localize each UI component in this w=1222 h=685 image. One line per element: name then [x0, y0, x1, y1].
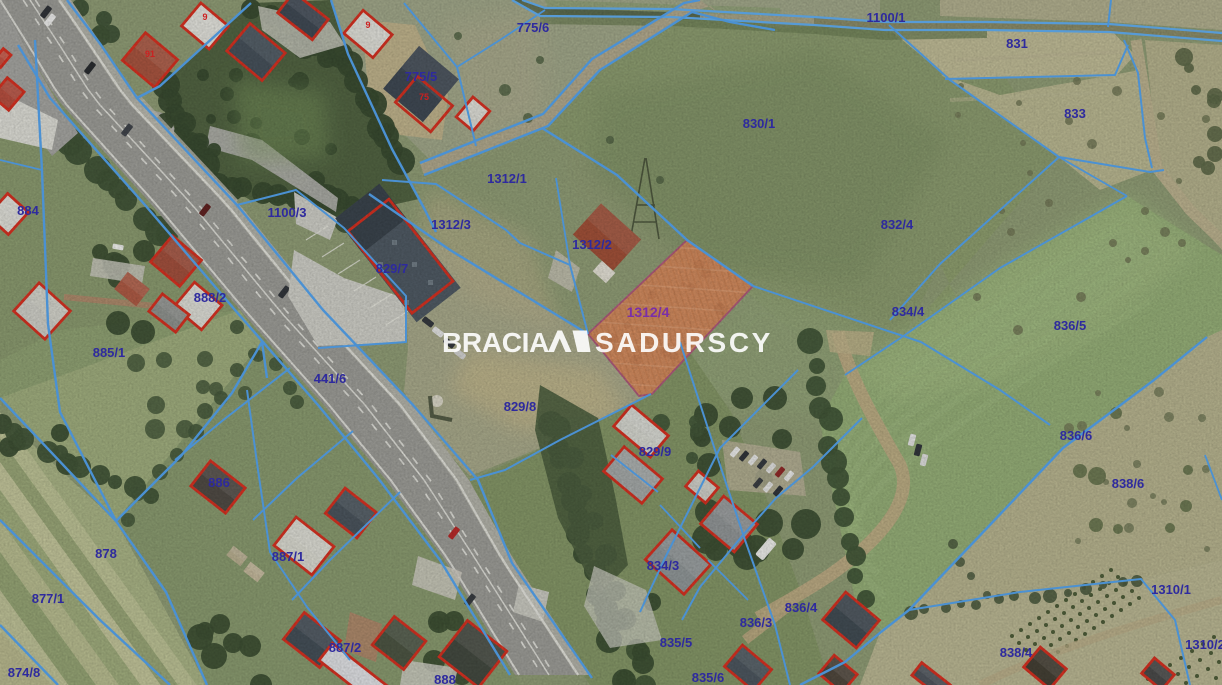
svg-text:834/3: 834/3	[647, 558, 680, 573]
svg-text:886: 886	[208, 475, 230, 490]
svg-text:75: 75	[419, 92, 429, 102]
svg-text:829/9: 829/9	[639, 444, 672, 459]
svg-text:838/4: 838/4	[1000, 645, 1033, 660]
svg-text:836/5: 836/5	[1054, 318, 1087, 333]
svg-text:829/8: 829/8	[504, 399, 537, 414]
svg-text:836/6: 836/6	[1060, 428, 1093, 443]
svg-text:1312/1: 1312/1	[487, 171, 527, 186]
svg-text:836/4: 836/4	[785, 600, 818, 615]
svg-text:834/4: 834/4	[892, 304, 925, 319]
svg-text:1100/3: 1100/3	[267, 205, 306, 220]
svg-text:829/7: 829/7	[376, 261, 409, 276]
svg-text:884: 884	[17, 203, 39, 218]
svg-text:9: 9	[202, 12, 207, 22]
svg-text:835/5: 835/5	[660, 635, 693, 650]
svg-text:874/8: 874/8	[8, 665, 41, 680]
svg-text:833: 833	[1064, 106, 1086, 121]
svg-text:1312/2: 1312/2	[572, 237, 612, 252]
svg-text:1310/2: 1310/2	[1185, 637, 1222, 652]
svg-text:832/4: 832/4	[881, 217, 914, 232]
svg-text:831: 831	[1006, 36, 1028, 51]
svg-text:887/2: 887/2	[329, 640, 362, 655]
svg-text:835/6: 835/6	[692, 670, 725, 685]
svg-text:775/6: 775/6	[517, 20, 550, 35]
svg-text:830/1: 830/1	[743, 116, 776, 131]
svg-text:888: 888	[434, 672, 456, 685]
svg-text:441/6: 441/6	[314, 371, 347, 386]
svg-text:BRACIA: BRACIA	[442, 327, 549, 358]
svg-text:91: 91	[145, 49, 155, 59]
svg-text:887/1: 887/1	[272, 549, 305, 564]
svg-text:9: 9	[365, 20, 370, 30]
svg-text:888/2: 888/2	[194, 290, 227, 305]
svg-text:838/6: 838/6	[1112, 476, 1145, 491]
svg-text:885/1: 885/1	[93, 345, 126, 360]
svg-text:1312/4: 1312/4	[627, 304, 670, 320]
svg-text:SADURSCY: SADURSCY	[595, 327, 773, 358]
svg-text:877/1: 877/1	[32, 591, 65, 606]
svg-text:1100/1: 1100/1	[866, 10, 905, 25]
svg-text:878: 878	[95, 546, 117, 561]
svg-text:1310/1: 1310/1	[1151, 582, 1191, 597]
svg-text:775/5: 775/5	[405, 69, 438, 84]
svg-text:1312/3: 1312/3	[431, 217, 471, 232]
svg-text:836/3: 836/3	[740, 615, 773, 630]
